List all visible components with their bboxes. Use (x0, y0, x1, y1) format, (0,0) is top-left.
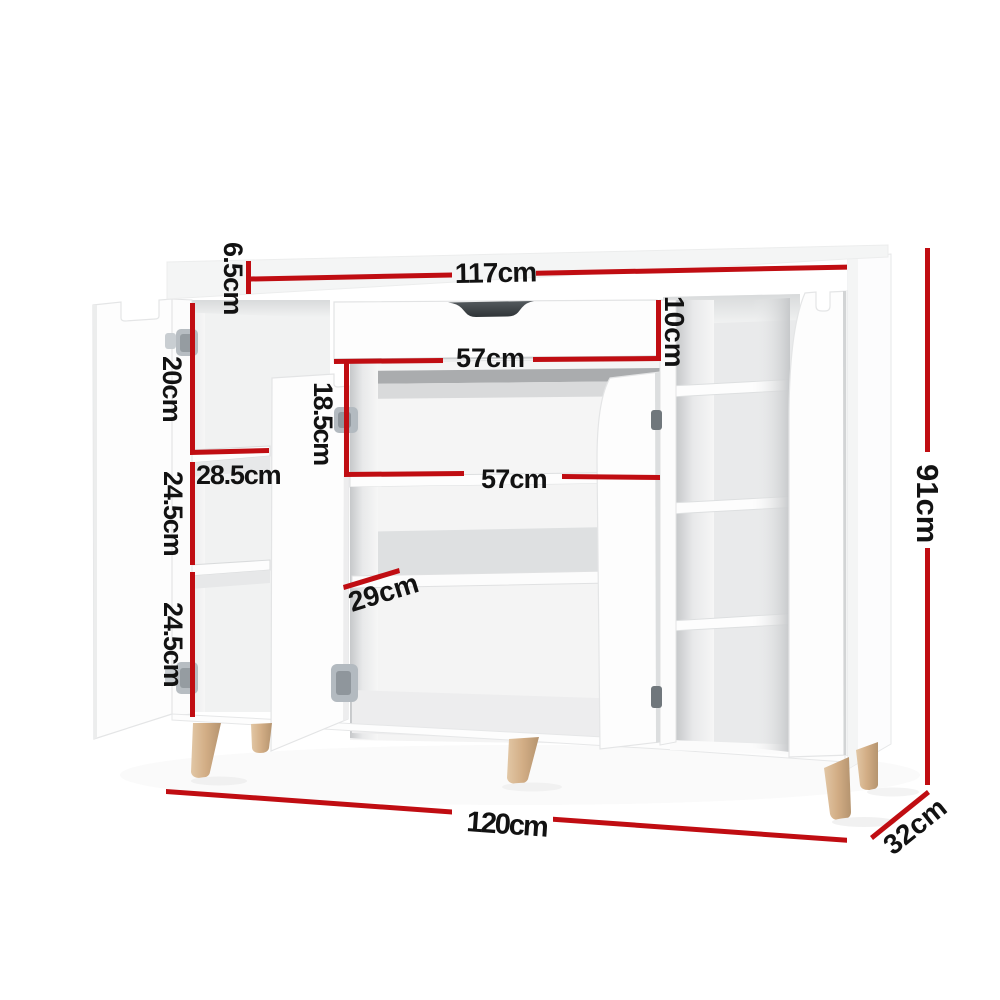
svg-text:117cm: 117cm (455, 256, 537, 289)
svg-text:10cm: 10cm (659, 296, 690, 368)
svg-text:57cm: 57cm (481, 464, 547, 494)
svg-text:120cm: 120cm (465, 806, 548, 844)
svg-text:24.5cm: 24.5cm (158, 471, 188, 556)
svg-text:91cm: 91cm (910, 464, 945, 543)
svg-text:57cm: 57cm (456, 343, 525, 373)
svg-text:28.5cm: 28.5cm (196, 460, 281, 490)
svg-text:20cm: 20cm (157, 356, 187, 422)
svg-text:6.5cm: 6.5cm (218, 242, 248, 315)
svg-text:18.5cm: 18.5cm (308, 382, 338, 465)
svg-text:24.5cm: 24.5cm (158, 602, 188, 687)
